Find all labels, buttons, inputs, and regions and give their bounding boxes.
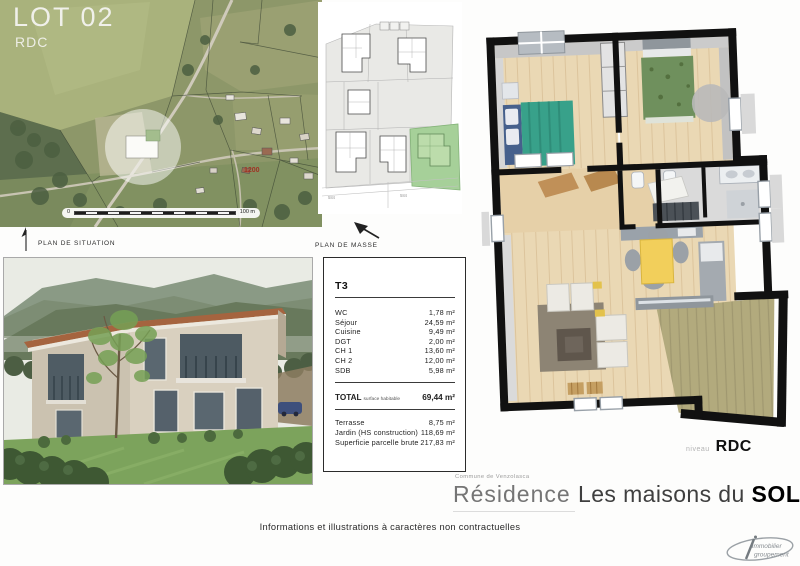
situation-aerial-map: LOT 02 RDC 1200 0 100 m [0, 0, 322, 227]
scale-end-label: 100 m [240, 210, 255, 216]
house-render-panel [3, 257, 313, 485]
plan-sheet: LOT 02 RDC 1200 0 100 m PLAN DE SITUATIO… [0, 0, 800, 566]
total-row: TOTALsurface habitable 69,44 m² [335, 383, 455, 409]
total-label: TOTAL [335, 393, 362, 402]
logo-line2: groupement [754, 552, 790, 559]
north-arrow-icon [20, 226, 32, 252]
unit-type-label: T3 [335, 280, 455, 292]
project-name: Les maisons du SOLEIL [578, 481, 800, 508]
floorplan-3d-panel [482, 14, 796, 462]
plan-situation-caption: PLAN DE SITUATION [38, 240, 115, 247]
table-row: Séjour24,59 m² [335, 318, 455, 328]
table-row: WC1,78 m² [335, 308, 455, 318]
level-value: RDC [716, 438, 752, 456]
table-row: CH 113,60 m² [335, 346, 455, 356]
table-row: Superficie parcelle brute217,83 m² [335, 438, 455, 448]
site-plan-drawing: 584 584 [318, 2, 462, 214]
table-row: CH 212,00 m² [335, 356, 455, 366]
lot-level-label: RDC [15, 34, 48, 50]
table-row: DGT2,00 m² [335, 337, 455, 347]
total-value: 69,44 m² [422, 393, 455, 402]
north-arrow-masse-icon [352, 221, 382, 241]
site-plan-art: 584 584 [318, 2, 462, 214]
commune-label: Commune de Venzolasca [455, 474, 529, 480]
total-sublabel: surface habitable [364, 397, 401, 402]
divider [335, 409, 455, 410]
project-name-bold: SOLEIL [751, 481, 800, 507]
surface-table: T3 WC1,78 m² Séjour24,59 m² Cuisine9,49 … [323, 257, 466, 472]
floorplan-art [477, 11, 800, 465]
lot-number-label: LOT 02 [13, 2, 115, 33]
site-dim-right: 584 [400, 193, 408, 198]
parcel-number-label: 1200 [244, 167, 260, 174]
agency-logo: immobilier groupement [724, 535, 798, 563]
residence-label: Résidence [453, 481, 575, 512]
table-row: Jardin (HS construction)118,69 m² [335, 428, 455, 438]
house-render-art [4, 258, 312, 484]
divider [335, 297, 455, 298]
scale-zero-label: 0 [67, 210, 70, 216]
dining-table [640, 239, 674, 284]
scale-bar-segments [74, 211, 236, 215]
table-row: SDB5,98 m² [335, 366, 455, 376]
terrace-deck [656, 297, 779, 429]
disclaimer-text: Informations et illustrations à caractèr… [0, 522, 780, 532]
plan-masse-caption: PLAN DE MASSE [315, 242, 378, 249]
table-row: Terrasse8,75 m² [335, 418, 455, 428]
floorplan-level-caption: niveau RDC [686, 438, 752, 456]
map-scale-bar: 0 100 m [62, 208, 260, 218]
niveau-label: niveau [686, 446, 710, 453]
extras-rows: Terrasse8,75 m² Jardin (HS construction)… [335, 418, 455, 448]
table-row: Cuisine9,49 m² [335, 327, 455, 337]
logo-line1: immobilier [752, 543, 782, 550]
site-dim-left: 584 [328, 195, 336, 200]
